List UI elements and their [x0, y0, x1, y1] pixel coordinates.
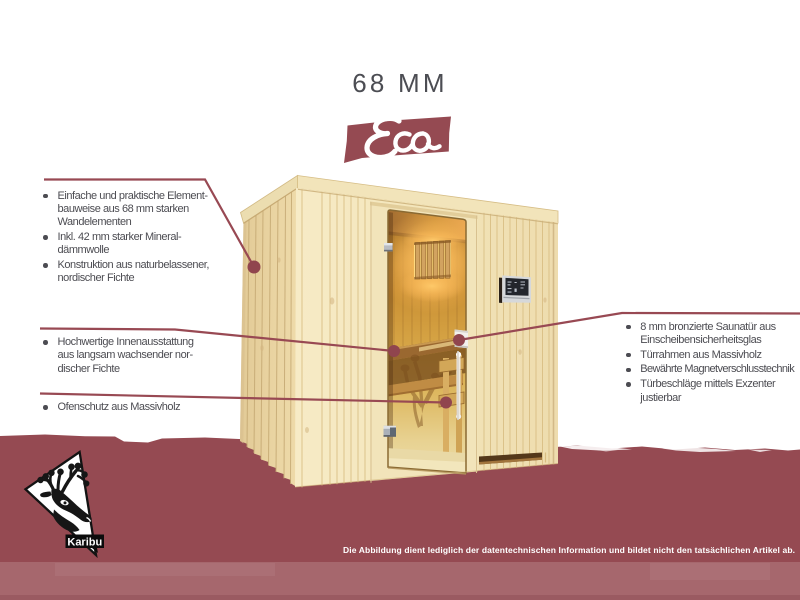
svg-text:Karibu: Karibu	[67, 536, 102, 548]
